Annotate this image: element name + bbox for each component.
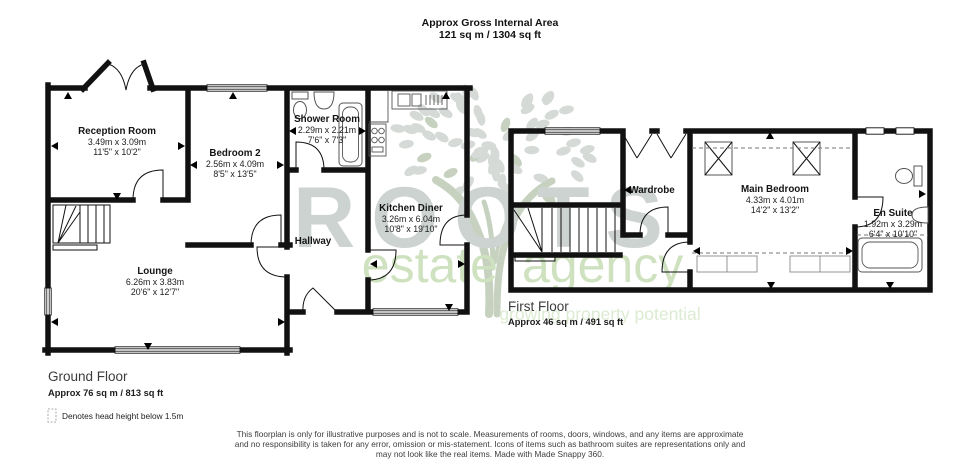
room-label-bedroom2: Bedroom 2 2.56m x 4.09m 8'5" x 13'5" — [206, 148, 264, 179]
ground-floor-title: Ground Floor — [48, 369, 128, 384]
svg-text:Bedroom 2: Bedroom 2 — [209, 148, 261, 159]
svg-text:2.56m x 4.09m: 2.56m x 4.09m — [206, 159, 264, 169]
header-title: Approx Gross Internal Area — [422, 17, 559, 29]
first-floor-title: First Floor — [508, 299, 569, 314]
svg-text:Shower Room: Shower Room — [294, 114, 360, 125]
floorplan-page: ROOTS estate agency growing property pot… — [0, 0, 980, 466]
wardrobe-door-leaves — [623, 134, 686, 158]
watermark-subtitle-left: estate — [362, 237, 498, 293]
ground-floor-area: Approx 76 sq m / 813 sq ft — [48, 388, 163, 398]
room-label-hallway: Hallway — [295, 236, 332, 247]
footer-line2: and no responsibility is taken for any e… — [235, 439, 746, 449]
svg-text:Lounge: Lounge — [137, 266, 173, 277]
first-floor-area: Approx 46 sq m / 491 sq ft — [508, 317, 623, 327]
staircase-ground — [53, 205, 110, 250]
legend: Denotes head height below 1.5m — [48, 409, 183, 422]
footer-line1: This floorplan is only for illustrative … — [237, 429, 744, 439]
room-label-main-bedroom: Main Bedroom 4.33m x 4.01m 14'2" x 13'2" — [741, 184, 809, 215]
svg-text:4.33m x 4.01m: 4.33m x 4.01m — [746, 195, 804, 205]
footer-disclaimer: This floorplan is only for illustrative … — [235, 429, 746, 459]
footer-line3: may not look like the real items. Made w… — [376, 449, 604, 459]
ensuite-bath-icon — [858, 238, 922, 272]
counter-edge — [369, 91, 388, 122]
svg-text:8'5" x 13'5": 8'5" x 13'5" — [213, 169, 256, 179]
legend-label: Denotes head height below 1.5m — [62, 411, 183, 421]
skylight-icons — [705, 142, 820, 175]
basin-icon — [314, 92, 334, 109]
svg-text:Kitchen Diner: Kitchen Diner — [379, 203, 443, 214]
svg-text:6'4" x 10'10": 6'4" x 10'10" — [869, 229, 917, 239]
bay-french-doors — [108, 64, 144, 90]
room-label-lounge: Lounge 6.26m x 3.83m 20'6" x 12'7" — [126, 266, 184, 297]
svg-text:6.26m x 3.83m: 6.26m x 3.83m — [126, 277, 184, 287]
header-area: 121 sq m / 1304 sq ft — [439, 29, 542, 41]
watermark-subtitle-right: agency — [522, 237, 683, 293]
ground-floor-plan: Reception Room 3.49m x 3.09m 11'5" x 10'… — [45, 63, 470, 353]
svg-text:2.29m x 2.21m: 2.29m x 2.21m — [298, 125, 356, 135]
svg-text:3.26m x 6.04m: 3.26m x 6.04m — [382, 214, 440, 224]
svg-text:3.49m x 3.09m: 3.49m x 3.09m — [88, 137, 146, 147]
ensuite-toilet-icon — [896, 166, 923, 186]
room-label-wardrobe: Wardrobe — [629, 185, 675, 196]
eaves-furniture — [697, 256, 850, 272]
svg-text:7'6" x 7'3": 7'6" x 7'3" — [308, 135, 346, 145]
stove-icon — [369, 124, 386, 156]
room-label-kitchen: Kitchen Diner 3.26m x 6.04m 10'8" x 19'1… — [379, 203, 443, 234]
room-label-reception: Reception Room 3.49m x 3.09m 11'5" x 10'… — [78, 126, 156, 157]
svg-text:11'5" x 10'2": 11'5" x 10'2" — [93, 147, 141, 157]
svg-text:1.92m x 3.29m: 1.92m x 3.29m — [864, 219, 922, 229]
svg-text:Main Bedroom: Main Bedroom — [741, 184, 809, 195]
head-height-legend-icon — [48, 409, 56, 422]
svg-text:20'6" x 12'7": 20'6" x 12'7" — [131, 287, 179, 297]
svg-text:Reception Room: Reception Room — [78, 126, 156, 137]
svg-text:En Suite: En Suite — [873, 208, 913, 219]
svg-text:14'2" x 13'2": 14'2" x 13'2" — [751, 205, 799, 215]
svg-text:10'8" x 19'10": 10'8" x 19'10" — [384, 224, 437, 234]
